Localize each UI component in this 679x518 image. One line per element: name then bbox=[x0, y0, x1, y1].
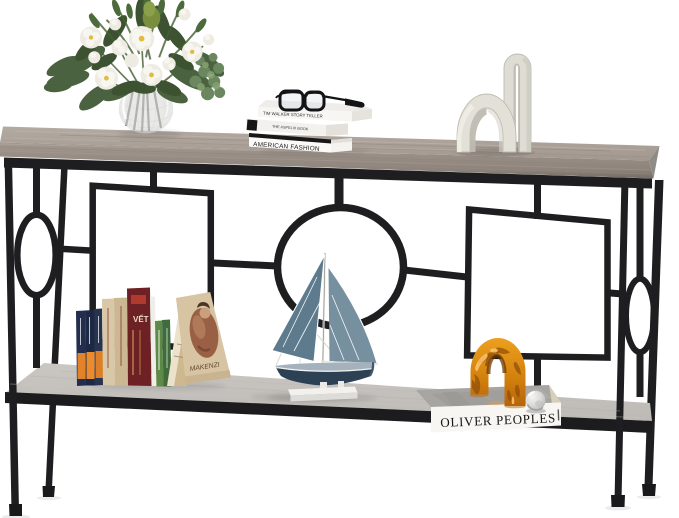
svg-text:VẾT: VẾT bbox=[133, 314, 149, 324]
